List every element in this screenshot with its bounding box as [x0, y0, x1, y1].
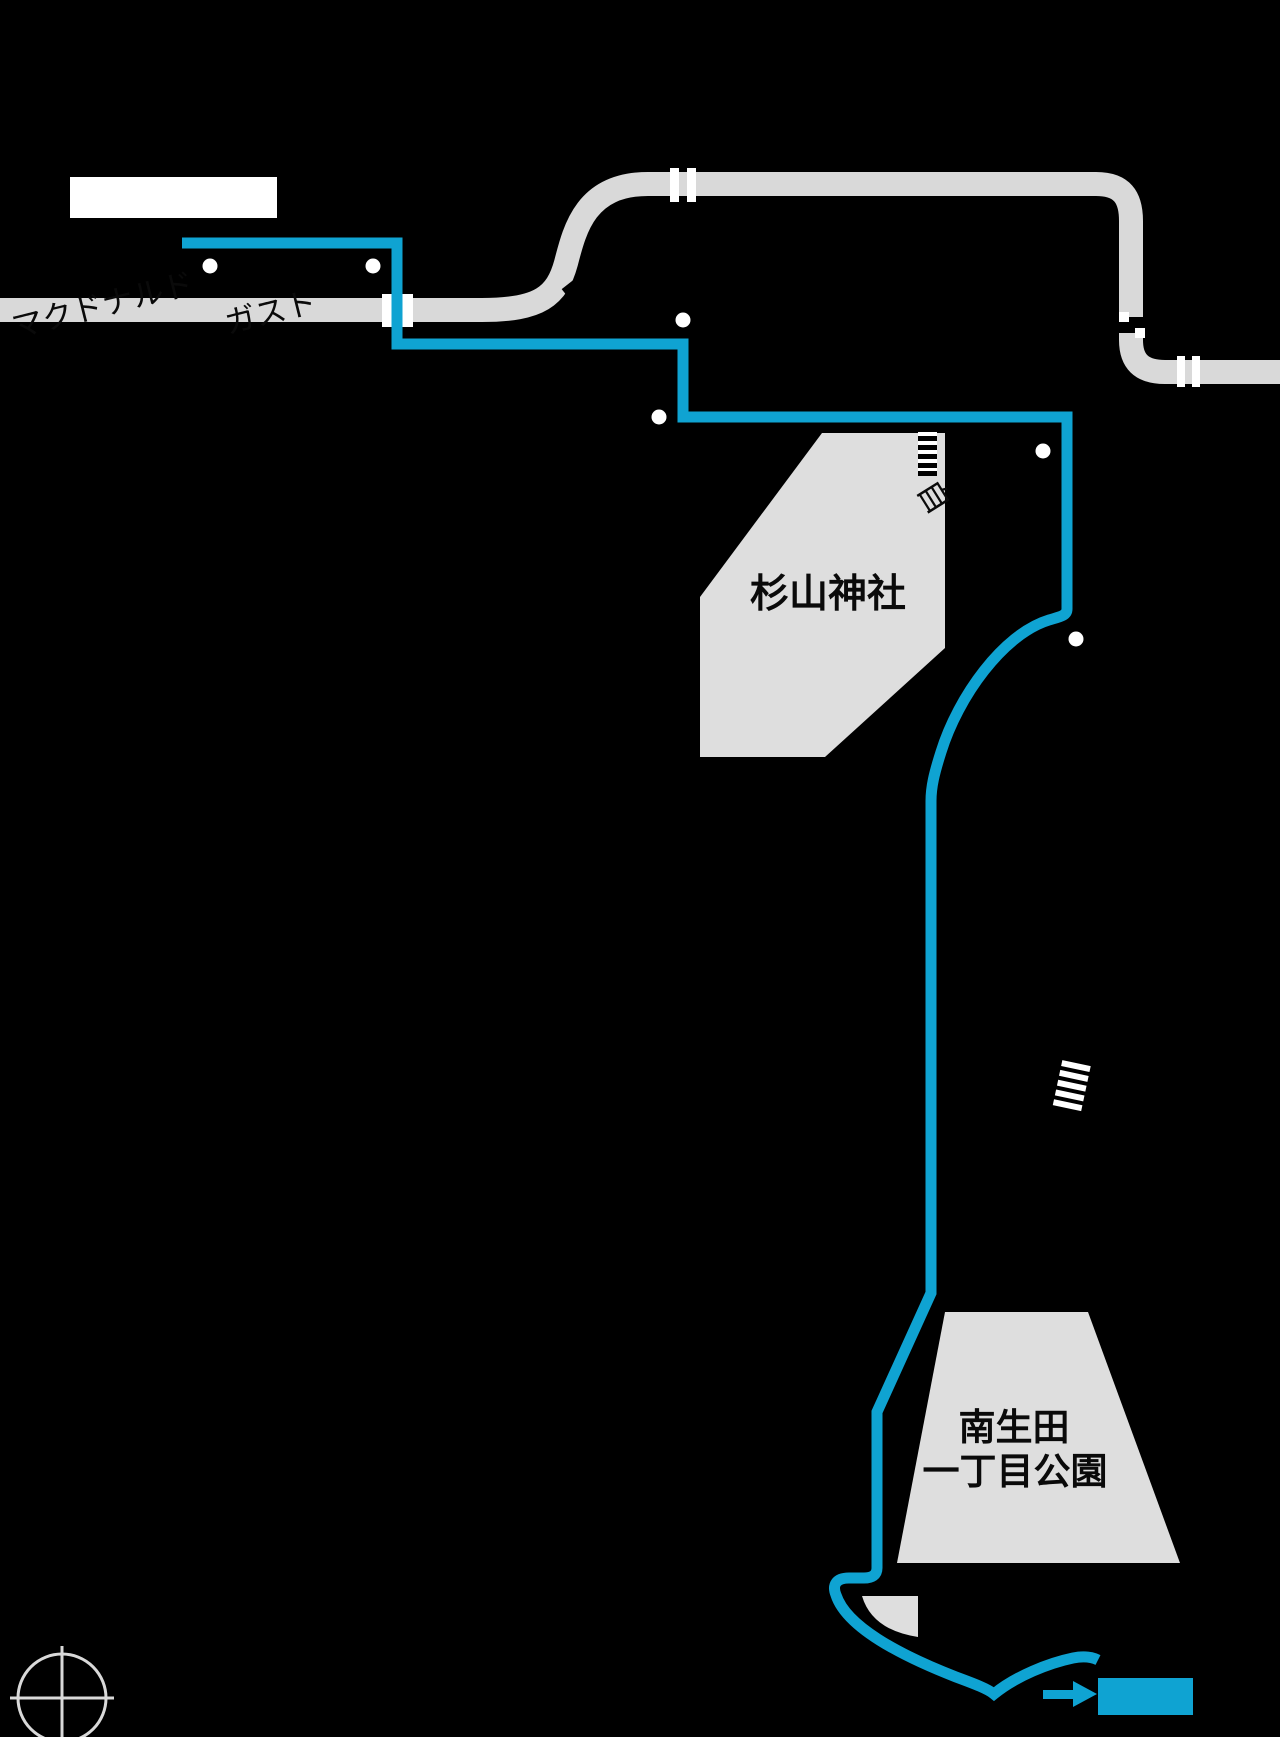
boundary-bar: [1177, 356, 1185, 387]
boundary-bar: [687, 168, 696, 202]
park-label-line2: 一丁目公園: [923, 1451, 1108, 1492]
route-map: マクドナルド ガスト 杉山神社 自 南生田 一丁目公園: [0, 0, 1280, 1737]
crosswalk-icon-tilted: [1051, 1057, 1092, 1114]
compass-icon: [10, 1646, 114, 1737]
boundary-bar: [1192, 356, 1200, 387]
waypoint-dot: [1036, 444, 1051, 459]
waypoint-dot: [1069, 632, 1084, 647]
waypoint-dot: [676, 313, 691, 328]
boundary-bar: [670, 168, 679, 202]
route-map-canvas: マクドナルド ガスト 杉山神社 自 南生田 一丁目公園: [0, 0, 1280, 1737]
road-break-tick-1: [1119, 312, 1129, 322]
road-break-tick-2: [1135, 328, 1145, 338]
waypoint-dot: [652, 410, 667, 425]
park-label-line1: 南生田: [959, 1407, 1070, 1448]
destination-box: [1098, 1678, 1193, 1715]
road-text-mcdonalds: マクドナルド: [8, 266, 197, 345]
shrine-label: 杉山神社: [750, 573, 906, 616]
crosswalk-stripes: [1053, 1060, 1091, 1111]
road-text-gusto: ガスト: [221, 284, 320, 340]
crosswalk-icon: [918, 432, 937, 476]
waypoint-dot: [203, 259, 218, 274]
waypoint-dot: [366, 259, 381, 274]
station-label-box: [70, 177, 277, 218]
destination-arrow-icon: [1043, 1681, 1097, 1707]
